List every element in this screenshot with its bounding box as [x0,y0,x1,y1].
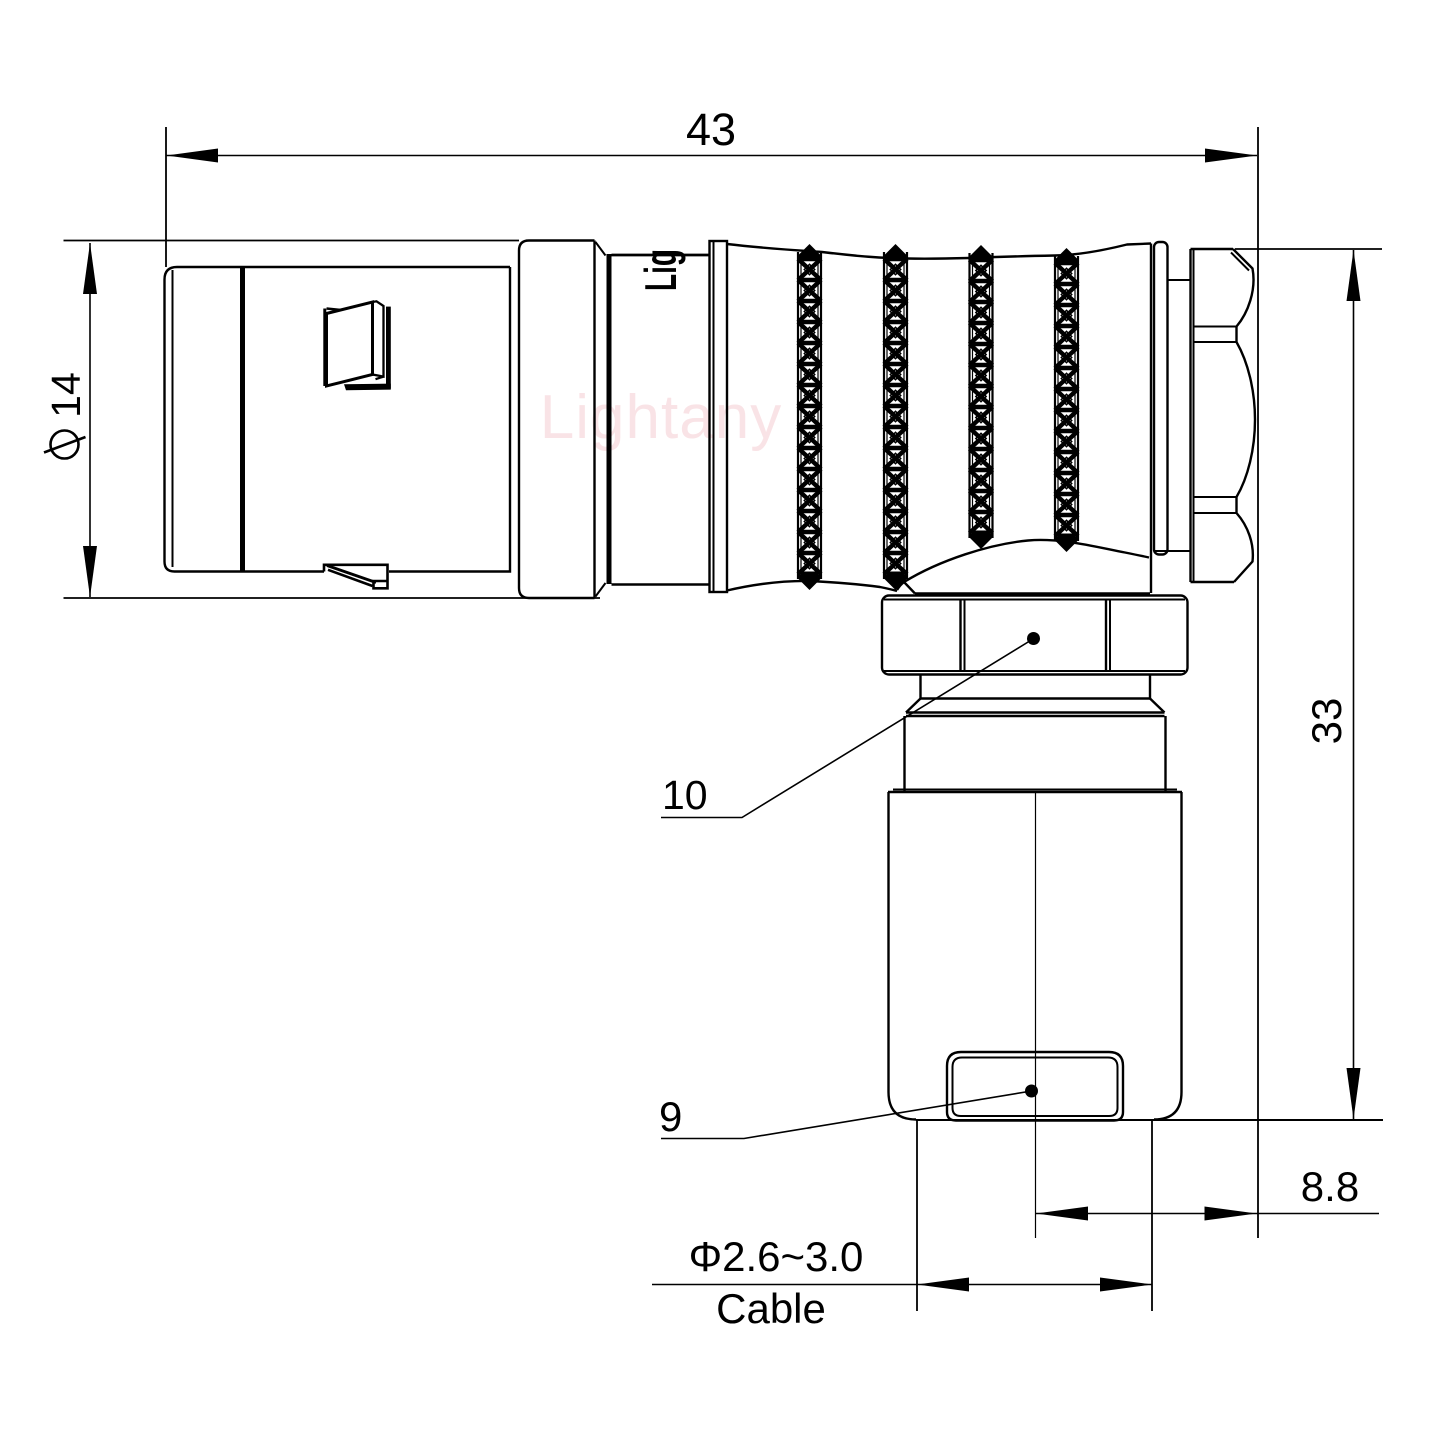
svg-text:8.8: 8.8 [1301,1163,1359,1210]
svg-text:Cable: Cable [716,1285,826,1332]
svg-text:Φ2.6~3.0: Φ2.6~3.0 [689,1233,864,1280]
svg-text:10: 10 [662,772,708,818]
svg-text:Lig: Lig [635,249,685,291]
svg-text:33: 33 [1303,698,1350,745]
svg-text:9: 9 [659,1093,682,1140]
svg-text:14: 14 [43,372,89,418]
svg-text:Lightany: Lightany [540,383,782,452]
svg-text:43: 43 [686,104,736,155]
